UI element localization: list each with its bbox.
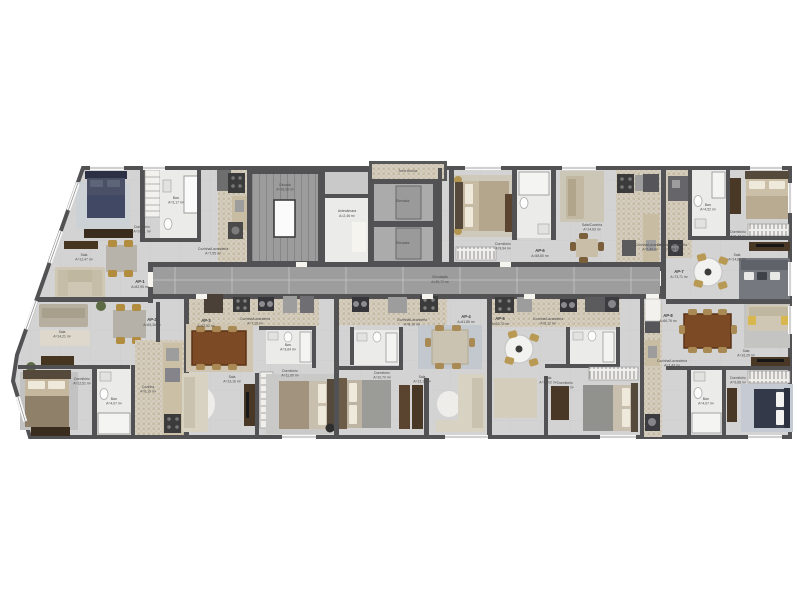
svg-text:Sala: Sala — [743, 349, 750, 353]
svg-text:A=60,72 m²: A=60,72 m² — [491, 322, 509, 326]
svg-text:A=12,13 m²: A=12,13 m² — [413, 380, 431, 384]
svg-text:Cozinha/Lavanderia: Cozinha/Lavanderia — [533, 317, 563, 321]
svg-text:Bwc: Bwc — [173, 196, 180, 200]
svg-text:A=7,44 m²: A=7,44 m² — [642, 248, 659, 252]
svg-text:Bwc: Bwc — [111, 397, 118, 401]
svg-text:A=14,21 m²: A=14,21 m² — [53, 335, 71, 339]
svg-text:A=7,18 m²: A=7,18 m² — [247, 322, 264, 326]
svg-text:Dormitório: Dormitório — [730, 230, 746, 234]
svg-text:A=16,28 m²: A=16,28 m² — [276, 188, 294, 192]
svg-text:A=3,64 m²: A=3,64 m² — [280, 348, 297, 352]
svg-text:A=13,16 m²: A=13,16 m² — [223, 380, 241, 384]
svg-text:Dormitório: Dormitório — [134, 225, 150, 229]
svg-text:A=8,12 m²: A=8,12 m² — [540, 322, 557, 326]
svg-text:A=61,85 m²: A=61,85 m² — [457, 320, 475, 324]
svg-text:A=11,09 m²: A=11,09 m² — [281, 374, 299, 378]
svg-text:A=65,36 m²: A=65,36 m² — [143, 323, 161, 327]
svg-text:A=8,10 m²: A=8,10 m² — [404, 323, 421, 327]
svg-text:AP-5: AP-5 — [495, 316, 505, 321]
svg-text:A=16,29 m²: A=16,29 m² — [737, 354, 755, 358]
svg-text:Bwc: Bwc — [285, 343, 292, 347]
svg-text:Dormitório: Dormitório — [730, 376, 746, 380]
svg-text:Sala/Cozinha: Sala/Cozinha — [582, 223, 602, 227]
svg-text:A=66,76 m²: A=66,76 m² — [659, 319, 677, 323]
svg-text:Dormitório: Dormitório — [74, 377, 90, 381]
svg-text:Elevador: Elevador — [396, 241, 410, 245]
svg-text:Dormitório: Dormitório — [282, 369, 298, 373]
svg-text:A=73,71 m²: A=73,71 m² — [670, 275, 688, 279]
svg-text:A=12,51 m²: A=12,51 m² — [73, 382, 91, 386]
svg-text:A=9,68 m²: A=9,68 m² — [730, 381, 747, 385]
svg-text:AP-8: AP-8 — [663, 313, 673, 318]
svg-text:Antecâmara: Antecâmara — [338, 209, 356, 213]
svg-text:A=10,11 m²: A=10,11 m² — [133, 230, 151, 234]
svg-text:A=12,47 m²: A=12,47 m² — [75, 258, 93, 262]
svg-text:Sala: Sala — [545, 376, 552, 380]
svg-text:Cozinha/Lavanderia: Cozinha/Lavanderia — [657, 359, 687, 363]
svg-text:AP-1: AP-1 — [135, 279, 145, 284]
svg-text:AP-6: AP-6 — [535, 248, 545, 253]
svg-text:Dormitório: Dormitório — [374, 371, 390, 375]
svg-text:A=4,52 m²: A=4,52 m² — [700, 208, 717, 212]
svg-text:A=7,43 m²: A=7,43 m² — [664, 364, 681, 368]
svg-text:AP-7: AP-7 — [674, 269, 684, 274]
svg-text:Sala: Sala — [59, 330, 66, 334]
svg-text:A=11,07 m²: A=11,07 m² — [556, 386, 574, 390]
svg-text:A=3,17 m²: A=3,17 m² — [168, 201, 185, 205]
svg-text:Cozinha/Lavanderia: Cozinha/Lavanderia — [397, 318, 427, 322]
svg-text:Circulação: Circulação — [432, 275, 448, 279]
svg-text:A=35,72 m²: A=35,72 m² — [431, 280, 449, 284]
svg-text:A=2,46 m²: A=2,46 m² — [339, 214, 356, 218]
svg-text:A=10,02 m²: A=10,02 m² — [539, 381, 557, 385]
svg-text:A=62,52 m²: A=62,52 m² — [197, 324, 215, 328]
svg-text:A=7,55 m²: A=7,55 m² — [205, 252, 222, 256]
svg-text:A=9,43 m²: A=9,43 m² — [730, 235, 747, 239]
svg-text:Cozinha/Lavanderia: Cozinha/Lavanderia — [657, 243, 687, 247]
svg-text:Sala: Sala — [734, 253, 741, 257]
svg-text:A=14,88 m²: A=14,88 m² — [728, 258, 746, 262]
svg-text:Escada: Escada — [279, 183, 290, 187]
svg-text:A=9,94 m²: A=9,94 m² — [495, 247, 512, 251]
svg-text:A=4,07 m²: A=4,07 m² — [106, 402, 123, 406]
svg-text:Elevador: Elevador — [396, 199, 410, 203]
svg-text:A=10,70 m²: A=10,70 m² — [373, 376, 391, 380]
svg-text:AP-3: AP-3 — [201, 318, 211, 323]
svg-text:Bwc: Bwc — [705, 203, 712, 207]
svg-text:Dormitório: Dormitório — [557, 381, 573, 385]
svg-text:A=82,95 m²: A=82,95 m² — [131, 285, 149, 289]
svg-text:Bwc: Bwc — [703, 397, 710, 401]
svg-text:Sala: Sala — [419, 375, 426, 379]
svg-text:Sala: Sala — [81, 253, 88, 257]
svg-text:Cozinha: Cozinha — [142, 385, 155, 389]
svg-text:Sala: Sala — [229, 375, 236, 379]
svg-text:Cozinha/Lavanderia: Cozinha/Lavanderia — [240, 317, 270, 321]
svg-text:Área técnica: Área técnica — [399, 169, 418, 173]
svg-text:Dormitório: Dormitório — [495, 242, 511, 246]
svg-text:A=14,63 m²: A=14,63 m² — [583, 228, 601, 232]
svg-text:A=6,19 m²: A=6,19 m² — [140, 390, 157, 394]
svg-text:A=6,98 m²: A=6,98 m² — [664, 248, 681, 252]
svg-text:AP-4: AP-4 — [461, 314, 471, 319]
svg-text:A=58,60 m²: A=58,60 m² — [531, 254, 549, 258]
svg-text:A=4,07 m²: A=4,07 m² — [698, 402, 715, 406]
svg-text:Cozinha/Lavanderia: Cozinha/Lavanderia — [198, 247, 228, 251]
svg-text:AP-2: AP-2 — [147, 317, 157, 322]
